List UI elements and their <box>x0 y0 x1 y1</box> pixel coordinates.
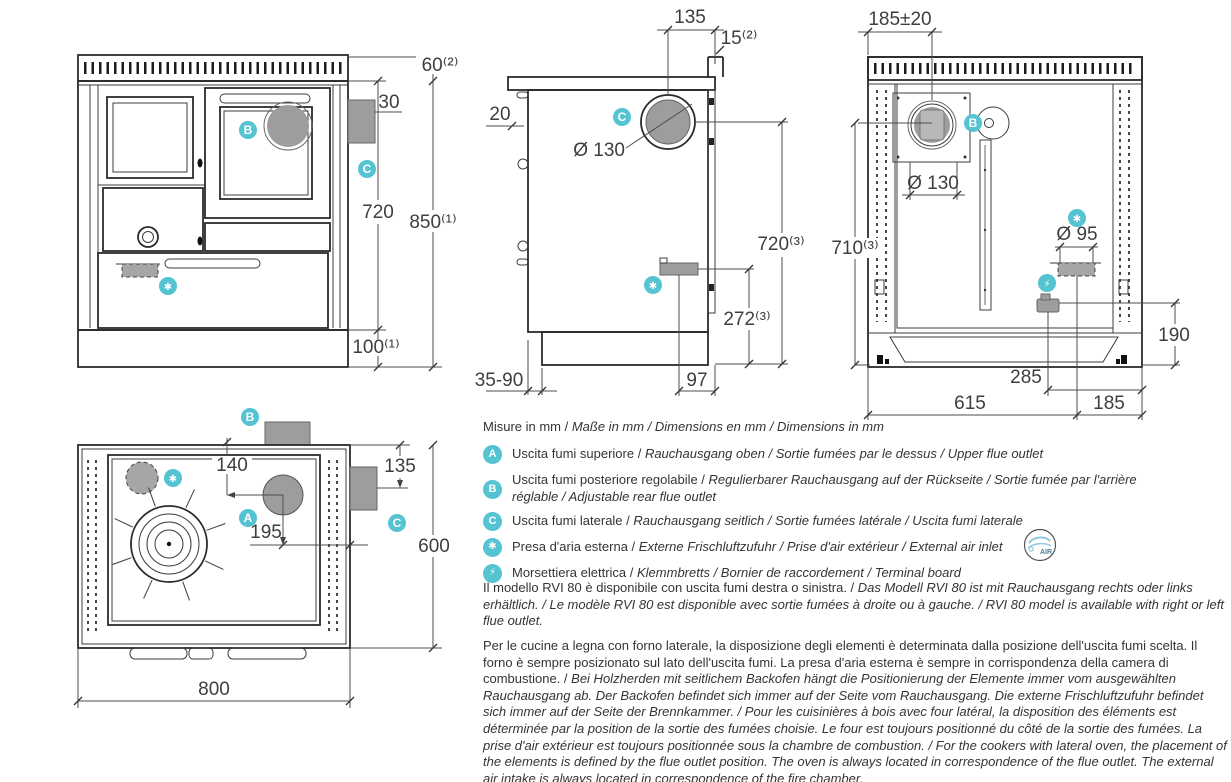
legend-row-side-flue: C Uscita fumi laterale / Rauchausgang se… <box>483 513 1225 531</box>
top-view: B ✱ A C <box>70 398 470 710</box>
door-latch <box>198 159 203 168</box>
dim-total-height: 850⁽¹⁾ <box>409 212 456 233</box>
dim-air-inlet-height: 272⁽³⁾ <box>723 309 770 330</box>
units-note-italic: Maße in mm / Dimensions en mm / Dimensio… <box>572 419 884 434</box>
air-inlet-circle <box>126 462 158 494</box>
rear-air-inlet <box>1050 263 1101 276</box>
dim-air-diameter: Ø 95 <box>1056 224 1097 245</box>
dim-width: 800 <box>198 679 230 700</box>
dim-plinth-recess: 35-90 <box>475 370 524 391</box>
dim-flue-to-edge: 140 <box>216 455 248 476</box>
badge-rear-flue: B <box>964 114 982 132</box>
dim-side-flue-offset: 135 <box>384 456 416 477</box>
firebox-glass-door <box>98 97 205 185</box>
rear-flue-outlet <box>265 422 310 445</box>
dim-flue-to-back: 195 <box>250 522 282 543</box>
badge-air-label: ✱ <box>169 474 177 485</box>
dim-flue-to-back: 135 <box>674 7 706 28</box>
legend: Misure in mm / Maße in mm / Dimensions e… <box>483 419 1225 591</box>
badge-air-inlet: ✱ <box>159 277 177 295</box>
rear-stove-outline <box>868 57 1142 367</box>
dim-air-from-left: 615 <box>954 393 986 414</box>
dim-body-height: 720 <box>362 202 394 223</box>
rear-view: B ✱ ⚡ <box>828 0 1231 420</box>
air-logo-icon: AIR <box>1022 527 1058 563</box>
oven-door <box>205 88 330 251</box>
badge-air-label: ✱ <box>164 282 172 293</box>
legend-row-upper-flue: A Uscita fumi superiore / Rauchausgang o… <box>483 446 1225 464</box>
terminal-board <box>1037 294 1059 312</box>
top-stove-outline <box>78 445 350 659</box>
badge-rear-flue: B <box>241 408 259 426</box>
legend-row-air-inlet: ✱ Presa d'aria esterna / Externe Frischl… <box>483 539 1225 557</box>
wood-drawer <box>98 253 328 328</box>
front-stove-outline <box>78 55 348 367</box>
badge-rear-flue: B <box>239 121 257 139</box>
badge-air: ✱ <box>483 538 502 557</box>
side-flue-outlet <box>348 100 375 143</box>
badge-b: B <box>483 480 502 499</box>
technical-drawing-page: B C ✱ 60⁽²⁾ 30 <box>0 0 1231 782</box>
air-inlet-shelf <box>660 258 698 275</box>
badge-b-label: B <box>244 123 253 137</box>
side-flue-outlet <box>350 467 377 510</box>
legend-text: Uscita fumi superiore / Rauchausgang obe… <box>512 446 1225 462</box>
dim-air-from-right: 185 <box>1093 393 1125 414</box>
notes: Il modello RVI 80 è disponibile con usci… <box>483 580 1229 782</box>
dim-rear-flue-height: 710⁽³⁾ <box>831 238 878 259</box>
dim-worktop-height: 60⁽²⁾ <box>422 55 459 76</box>
air-logo-text: AIR <box>1040 549 1052 556</box>
ash-door <box>103 188 203 251</box>
badge-c-label: C <box>618 110 627 124</box>
side-dimension-lines <box>486 26 788 396</box>
layout-note: Per le cucine a legna con forno laterale… <box>483 638 1229 782</box>
dim-back-gap: 15⁽²⁾ <box>721 28 758 49</box>
rear-flue-disc <box>267 105 309 147</box>
rear-dimension-lines <box>851 28 1180 420</box>
badge-air-inlet: ✱ <box>644 276 662 294</box>
side-view: C ✱ <box>462 0 860 400</box>
dim-air-to-back: 97 <box>686 370 707 391</box>
badge-air-inlet: ✱ <box>164 469 182 487</box>
badge-b-label: B <box>969 116 978 130</box>
badge-a: A <box>483 445 502 464</box>
legend-row-rear-flue: B Uscita fumi posteriore regolabile / Re… <box>483 472 1225 505</box>
front-view: B C ✱ 60⁽²⁾ 30 <box>70 38 470 384</box>
badge-c-label: C <box>393 516 402 530</box>
hotplate <box>113 488 226 601</box>
door-handles <box>517 92 528 265</box>
dim-side-flue-diameter: Ø 130 <box>573 140 625 161</box>
badge-electrical-label: ⚡ <box>1043 279 1050 290</box>
side-stove-outline <box>508 57 723 365</box>
availability-note: Il modello RVI 80 è disponibile con usci… <box>483 580 1229 630</box>
door-latch <box>198 237 203 246</box>
rear-flue-plate <box>893 93 970 162</box>
side-flue-collar <box>626 95 695 149</box>
badge-c: C <box>483 512 502 531</box>
units-note-roman: Misure in mm / <box>483 419 572 434</box>
dim-front-overhang: 20 <box>489 104 510 125</box>
dim-flue-to-side: 185±20 <box>868 9 931 30</box>
dim-rear-flue-diameter: Ø 130 <box>907 173 959 194</box>
dim-terminal-span: 285 <box>1010 367 1042 388</box>
badge-c-label: C <box>363 162 372 176</box>
badge-side-flue: C <box>613 108 631 126</box>
dim-flue-center-height: 720⁽³⁾ <box>757 234 804 255</box>
legend-text: Uscita fumi posteriore regolabile / Regu… <box>512 472 1225 505</box>
dim-plinth-height: 100⁽¹⁾ <box>352 337 399 358</box>
rear-bar <box>980 140 991 310</box>
legend-text: Presa d'aria esterna / Externe Frischluf… <box>512 539 1225 555</box>
dim-depth: 600 <box>418 536 450 557</box>
dim-terminal-height: 190 <box>1158 325 1190 346</box>
badge-air-label: ✱ <box>649 281 657 292</box>
badge-electrical: ⚡ <box>1038 274 1056 292</box>
badge-b-label: B <box>246 410 255 424</box>
legend-text: Uscita fumi laterale / Rauchausgang seit… <box>512 513 1225 529</box>
units-note: Misure in mm / Maße in mm / Dimensions e… <box>483 419 1225 435</box>
badge-side-flue: C <box>388 514 406 532</box>
badge-side-flue: C <box>358 160 376 178</box>
dim-flue-offset: 30 <box>378 92 399 113</box>
external-air-inlet <box>122 264 158 277</box>
